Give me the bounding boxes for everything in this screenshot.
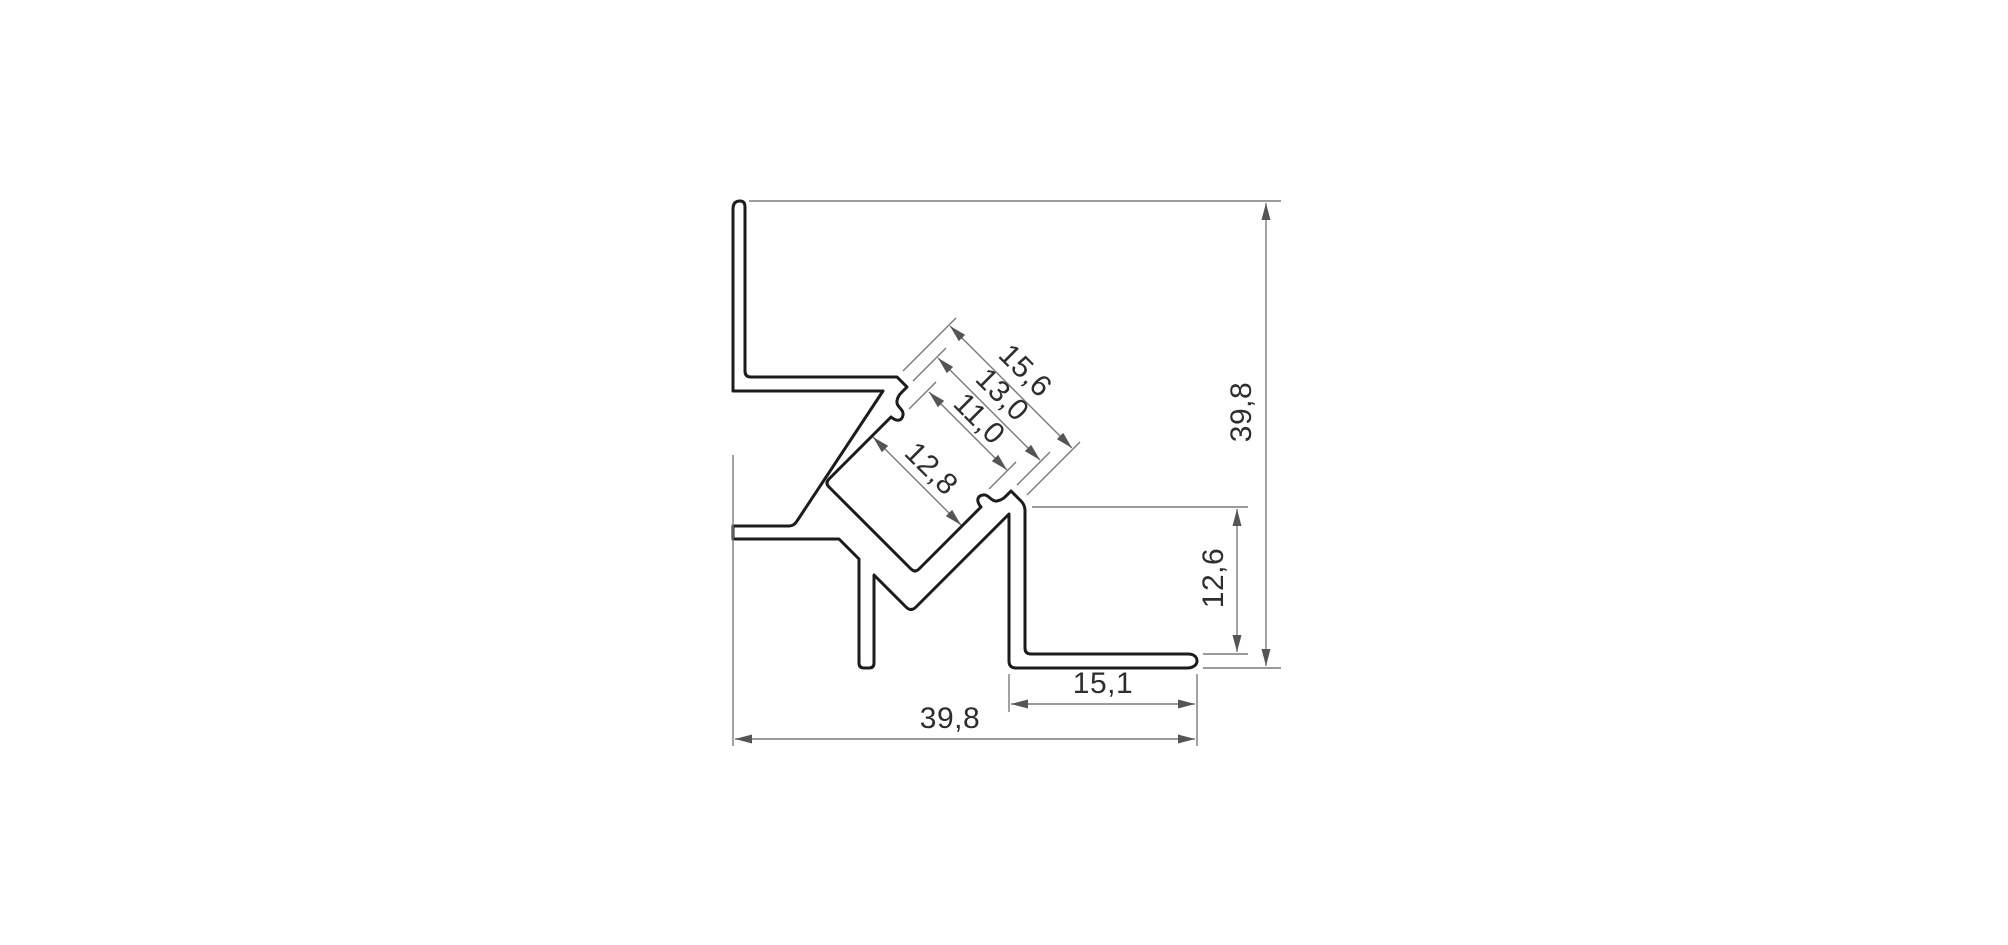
extension-line	[1027, 442, 1080, 495]
extension-line	[903, 318, 956, 371]
dim-label-overall-width: 39,8	[920, 702, 980, 735]
profile-drawing-svg: 39,8 12,6 15,1 39,8 15,6	[0, 0, 2008, 945]
extension-line	[913, 348, 946, 381]
extension-line	[1017, 452, 1050, 485]
dim-label-foot-width: 15,1	[1073, 667, 1133, 700]
profile-outline	[733, 201, 1197, 668]
dim-label-channel-width: 12,8	[898, 436, 964, 502]
technical-drawing-canvas: 39,8 12,6 15,1 39,8 15,6	[0, 0, 2008, 945]
dim-label-right-flange-height: 12,6	[1197, 548, 1230, 608]
dim-right-flange-height: 12,6	[1032, 507, 1248, 654]
dim-overall-width: 39,8	[733, 455, 1195, 746]
dim-channel-width: 12,8	[873, 436, 964, 525]
dim-label-overall-height: 39,8	[1225, 382, 1258, 442]
dim-foot-width: 15,1	[1009, 667, 1197, 746]
